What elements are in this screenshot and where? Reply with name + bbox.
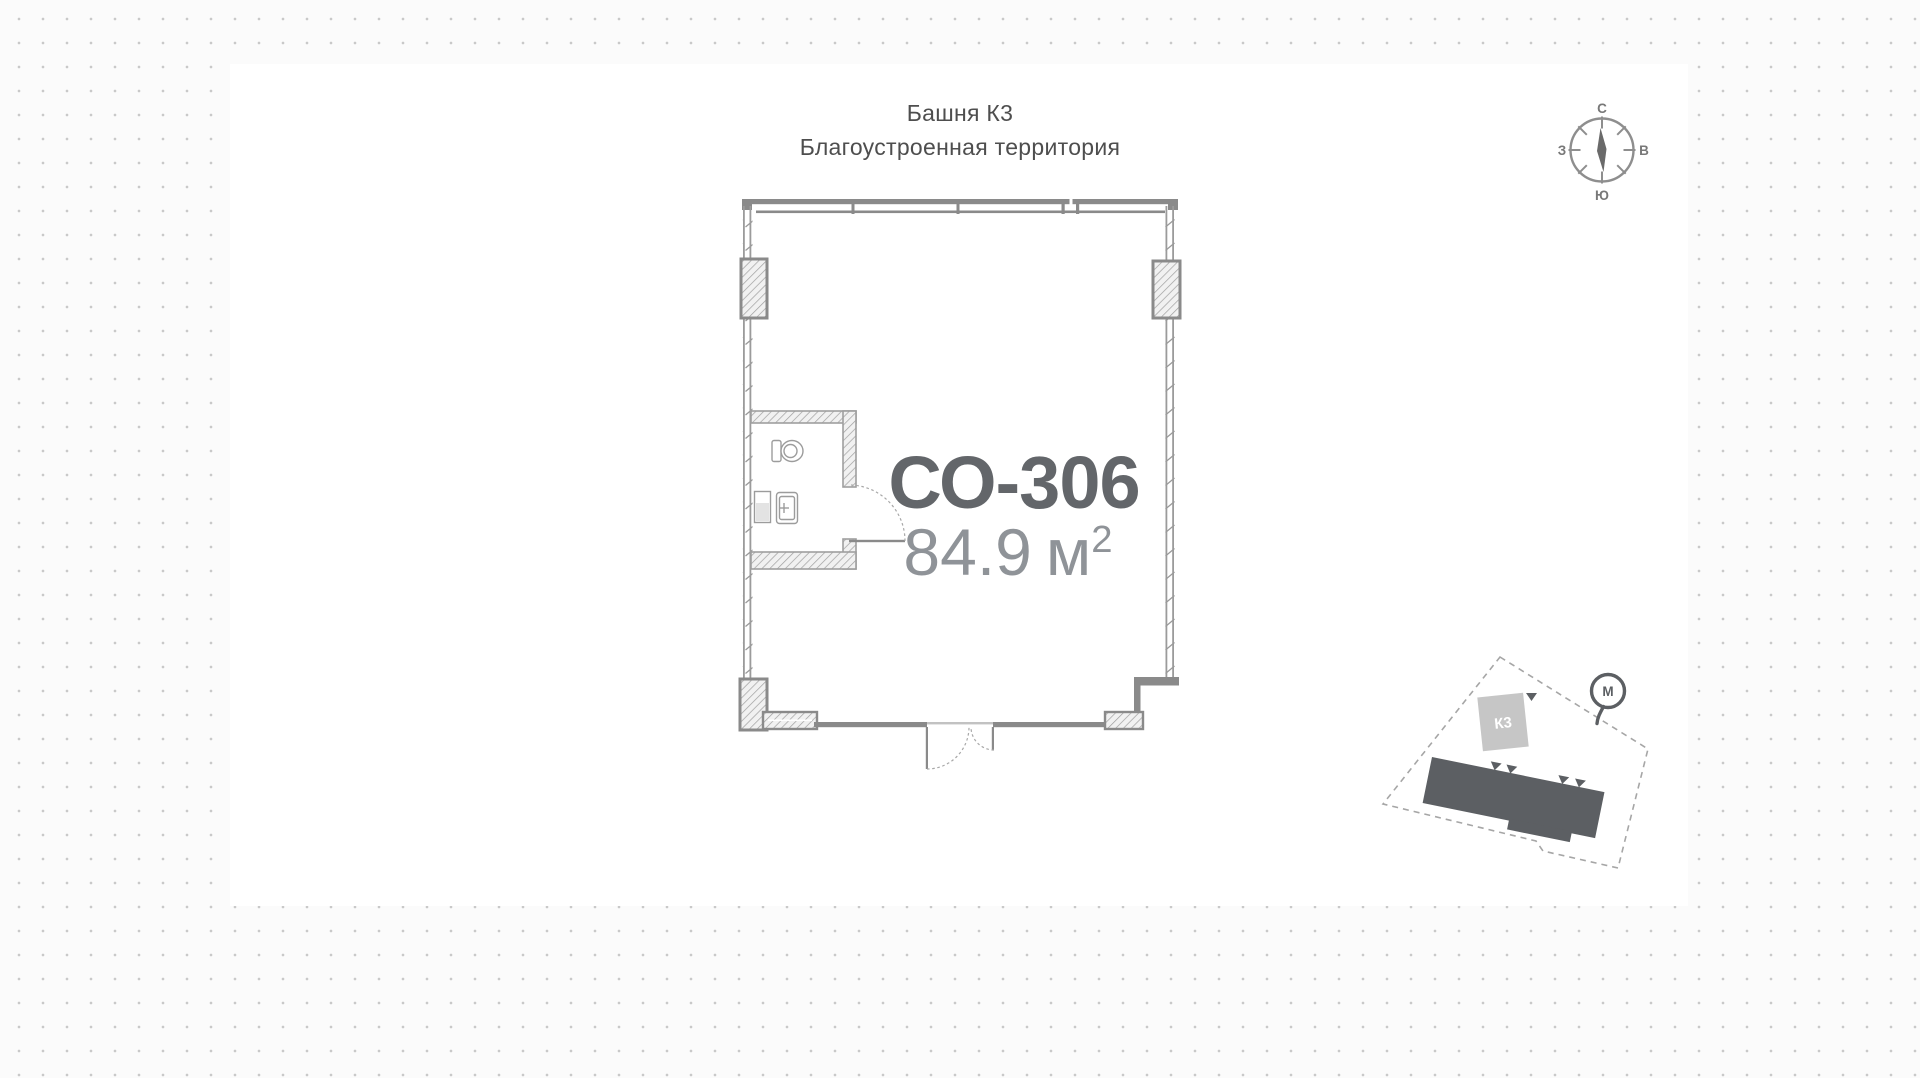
plan-title-building: Башня К3 [660,96,1260,130]
unit-area-value: 84.9 [903,515,1031,589]
wall-top [742,199,1178,214]
unit-area: 84.9м2 [848,514,1168,590]
mullion-tick [852,202,855,214]
site-plan-minimap: К3 М [1375,645,1665,885]
compass-needle [1597,128,1607,172]
site-tower-k3: К3 [1477,693,1528,752]
entry-door-leaf-left [926,727,928,769]
mullion-tick [1076,199,1079,214]
compass-label-west: З [1558,143,1566,158]
unit-id: СО-306 [854,440,1174,525]
toilet-icon [772,441,803,462]
site-tower-label: К3 [1494,714,1513,733]
unit-area-unit: м [1046,515,1091,589]
metro-letter: М [1602,684,1613,699]
corner-bottom-right [1105,677,1179,729]
wall-bottom [814,722,1107,727]
entry-door [926,727,994,769]
plan-title-subtitle: Благоустроенная территория [660,130,1260,164]
column-left [741,259,767,318]
compass-label-east: В [1639,143,1649,158]
corner-bottom-left [740,679,817,730]
tower-marker [1526,693,1537,701]
mullion-tick [957,202,960,214]
site-building [1421,750,1606,847]
unit-area-exponent: 2 [1091,518,1112,561]
compass-rose-icon: С Ю З В [1548,92,1660,214]
column-right [1153,261,1180,318]
compass-label-north: С [1597,101,1607,116]
compass-label-south: Ю [1595,188,1609,203]
sink-icon [777,493,798,524]
bathroom-wall-top [751,411,856,423]
mullion-tick [1062,199,1065,214]
bathroom-wall-bottom [751,552,856,569]
plan-title: Башня К3 Благоустроенная территория [660,96,1260,164]
entry-door-leaf-right [992,727,994,750]
shaft [755,492,771,523]
